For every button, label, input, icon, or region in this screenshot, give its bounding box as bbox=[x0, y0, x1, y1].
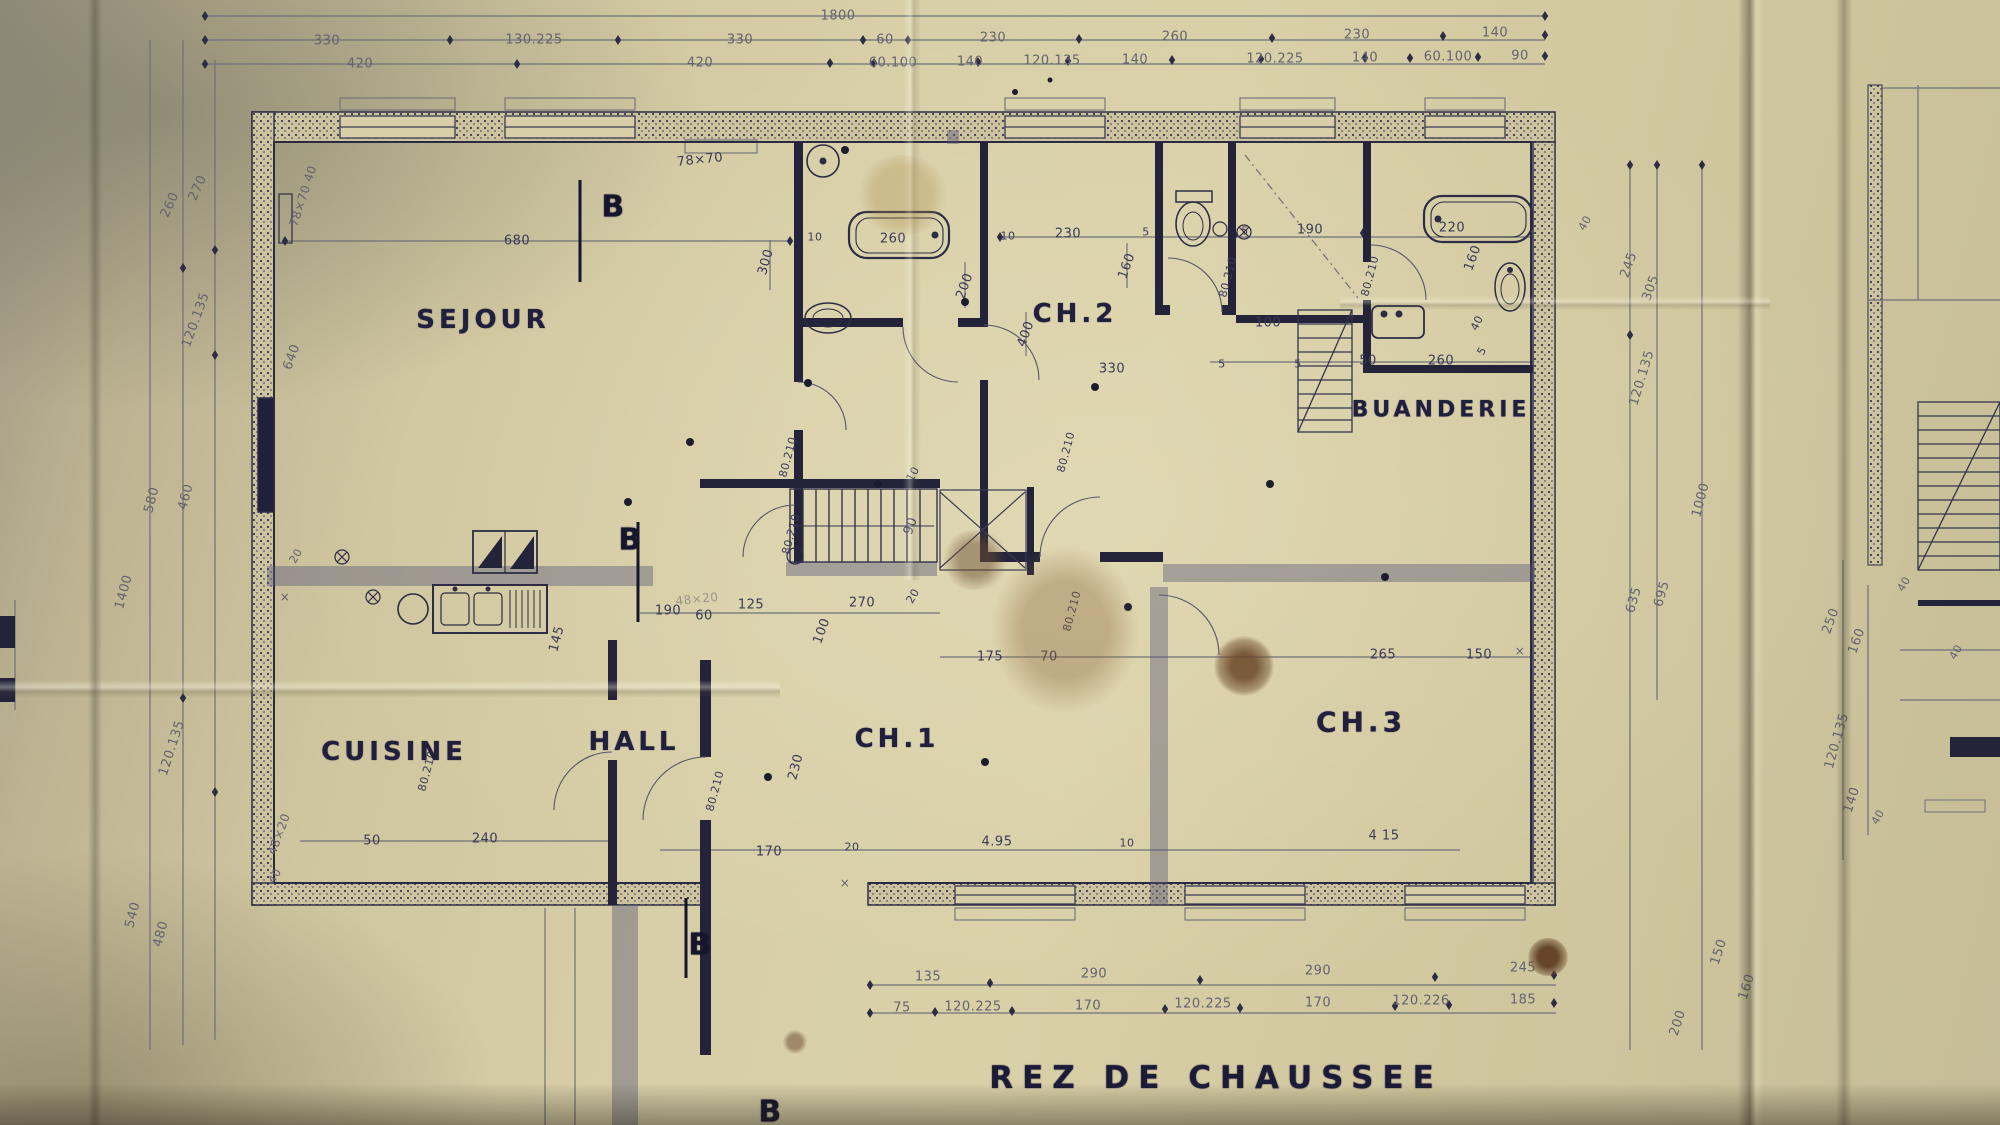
dim-text: 190 bbox=[1297, 223, 1323, 238]
section-marker-b: B bbox=[758, 1095, 781, 1125]
dim-text: 4.95 bbox=[982, 835, 1013, 850]
dim-text: 125 bbox=[738, 598, 764, 613]
dim-text: 480 bbox=[150, 919, 171, 948]
dim-text: 170 bbox=[1075, 999, 1101, 1014]
room-label-cuisine: CUISINE bbox=[321, 737, 467, 767]
dim-text: 140 bbox=[957, 55, 983, 70]
dim-text: 100 bbox=[1255, 316, 1281, 331]
dim-text: 60 bbox=[876, 33, 894, 48]
dim-text: 240 bbox=[472, 832, 498, 847]
dim-text: 120.135 bbox=[1822, 711, 1852, 770]
dim-text: 265 bbox=[1370, 648, 1396, 663]
dim-text: 640 bbox=[280, 342, 303, 372]
dim-text: 5 bbox=[1474, 345, 1489, 358]
plan-title: REZ DE CHAUSSEE bbox=[989, 1060, 1443, 1096]
dim-text: 200 bbox=[1667, 1008, 1689, 1038]
dim-text: 260 bbox=[1162, 30, 1188, 45]
dim-text: 4 15 bbox=[1369, 829, 1400, 844]
dim-text: 1400 bbox=[112, 573, 136, 611]
dim-text: 245 bbox=[1617, 250, 1640, 280]
dim-text: 185 bbox=[1510, 993, 1536, 1008]
dim-text: 10 bbox=[1001, 230, 1016, 243]
room-label-buanderie: BUANDERIE bbox=[1352, 398, 1531, 423]
dim-text: 260 bbox=[158, 190, 183, 220]
dim-text: × bbox=[280, 590, 291, 604]
dim-text: 80.210 bbox=[1358, 254, 1381, 297]
dim-text: 5 bbox=[1241, 225, 1249, 238]
dim-text: 60.100 bbox=[1424, 50, 1473, 65]
dim-text: 5 bbox=[1294, 358, 1302, 371]
dim-text: 120.226 bbox=[1392, 994, 1449, 1009]
dim-text: 20 bbox=[904, 586, 923, 605]
dim-text: 635 bbox=[1623, 585, 1645, 614]
dim-text: 120.135 bbox=[1626, 348, 1657, 407]
dim-text: 50 bbox=[1359, 354, 1377, 369]
dim-text: 290 bbox=[1081, 967, 1107, 982]
dim-text: 300 bbox=[755, 247, 777, 276]
annotation-layer: 1800330130.2253306023026023014042042060.… bbox=[0, 0, 2000, 1125]
dim-text: 160 bbox=[1115, 251, 1138, 281]
dim-text: 270 bbox=[849, 596, 875, 611]
dim-text: 40 bbox=[1947, 642, 1966, 661]
dim-text: 170 bbox=[756, 845, 782, 860]
room-label-ch-1: CH.1 bbox=[855, 724, 940, 754]
dim-text: 20 bbox=[845, 841, 860, 854]
dim-text: 20 bbox=[287, 546, 306, 565]
dim-text: 75 bbox=[893, 1001, 911, 1016]
dim-text: 140 bbox=[1352, 51, 1378, 66]
dim-text: 80.210 bbox=[1216, 255, 1239, 298]
dim-text: 120.225 bbox=[1246, 52, 1303, 67]
dim-text: 48×20 bbox=[675, 590, 719, 608]
dim-text: 10 bbox=[1120, 837, 1135, 850]
room-label-sejour: SEJOUR bbox=[416, 305, 549, 335]
dim-text: 160 bbox=[1845, 626, 1868, 656]
dim-text: 70 bbox=[1040, 650, 1058, 665]
section-marker-b: B bbox=[618, 523, 641, 558]
dim-text: 120.135 bbox=[156, 718, 188, 777]
section-marker-b: B bbox=[601, 190, 624, 225]
dim-text: 140 bbox=[1482, 26, 1508, 41]
dim-text: 120.225 bbox=[944, 1000, 1001, 1015]
dim-text: 135 bbox=[915, 970, 941, 985]
dim-text: 90 bbox=[901, 515, 921, 537]
dim-text: 78×70 bbox=[676, 150, 724, 170]
dim-text: 330 bbox=[314, 34, 340, 49]
dim-text: 290 bbox=[1305, 964, 1331, 979]
dim-text: 150 bbox=[1466, 648, 1492, 663]
dim-text: 170 bbox=[1305, 996, 1331, 1011]
room-label-ch-3: CH.3 bbox=[1316, 706, 1406, 739]
dim-text: 130.225 bbox=[505, 33, 562, 48]
dim-text: 80.210 bbox=[779, 512, 802, 555]
dim-text: 260 bbox=[880, 232, 906, 247]
dim-text: 420 bbox=[687, 56, 713, 71]
floor-plan-photo: 1800330130.2253306023026023014042042060.… bbox=[0, 0, 2000, 1125]
dim-text: 250 bbox=[1819, 606, 1842, 636]
dim-text: 120.225 bbox=[1174, 997, 1231, 1012]
dim-text: 10 bbox=[904, 464, 923, 483]
dim-text: 80.210 bbox=[776, 435, 799, 478]
dim-text: 460 bbox=[175, 482, 196, 511]
dim-text: 140 bbox=[1122, 53, 1148, 68]
dim-text: 330 bbox=[727, 33, 753, 48]
room-label-hall: HALL bbox=[588, 727, 679, 757]
dim-text: 150 bbox=[1708, 937, 1730, 967]
dim-text: 230 bbox=[1344, 28, 1370, 43]
dim-text: 200 bbox=[953, 271, 976, 301]
dim-text: 245 bbox=[1510, 961, 1536, 976]
dim-text: 580 bbox=[141, 485, 162, 514]
dim-text: 695 bbox=[1651, 579, 1673, 608]
dim-text: 230 bbox=[785, 752, 806, 781]
dim-text: 100 bbox=[810, 616, 833, 646]
dim-text: 145 bbox=[546, 624, 567, 653]
dim-text: 5 bbox=[1142, 226, 1150, 239]
dim-text: × bbox=[840, 876, 851, 890]
dim-text: 230 bbox=[980, 31, 1006, 46]
dim-text: 330 bbox=[1099, 362, 1125, 377]
dim-text: 120.135 bbox=[179, 291, 213, 350]
dim-text: 120.135 bbox=[1023, 54, 1080, 69]
dim-text: 90 bbox=[1511, 49, 1529, 64]
dim-text: 78×70 40 bbox=[287, 164, 320, 229]
dim-text: 5 bbox=[1218, 358, 1226, 371]
dim-text: 1000 bbox=[1689, 481, 1713, 519]
dim-text: 160 bbox=[1461, 243, 1484, 273]
dim-text: 220 bbox=[1439, 221, 1465, 236]
dim-text: 1800 bbox=[820, 9, 855, 24]
dim-text: × bbox=[1515, 644, 1526, 658]
dim-text: 50 bbox=[363, 834, 381, 849]
dim-text: 40 bbox=[1869, 807, 1888, 826]
dim-text: 80.210 bbox=[1054, 430, 1077, 473]
dim-text: 40 bbox=[1468, 313, 1486, 332]
dim-text: 40 bbox=[266, 866, 285, 885]
dim-text: 10 bbox=[808, 231, 823, 244]
dim-text: 80.210 bbox=[703, 769, 726, 812]
dim-text: 40 bbox=[1576, 213, 1595, 232]
dim-text: 305 bbox=[1639, 273, 1662, 303]
dim-text: 540 bbox=[122, 900, 143, 929]
dim-text: 48×20 bbox=[265, 811, 293, 856]
dim-text: 175 bbox=[977, 650, 1003, 665]
dim-text: 140 bbox=[1841, 785, 1863, 815]
dim-text: 680 bbox=[504, 234, 530, 249]
dim-text: 60 bbox=[695, 609, 713, 624]
dim-text: 40 bbox=[1895, 574, 1914, 593]
room-label-ch-2: CH.2 bbox=[1033, 299, 1118, 329]
dim-text: 230 bbox=[1055, 227, 1081, 242]
dim-text: 160 bbox=[1736, 972, 1758, 1002]
dim-text: 60.100 bbox=[869, 56, 918, 71]
dim-text: 270 bbox=[186, 173, 211, 203]
dim-text: 420 bbox=[347, 57, 373, 72]
dim-text: 260 bbox=[1428, 354, 1454, 369]
section-marker-b: B bbox=[688, 928, 711, 963]
dim-text: 80.210 bbox=[1060, 589, 1083, 632]
